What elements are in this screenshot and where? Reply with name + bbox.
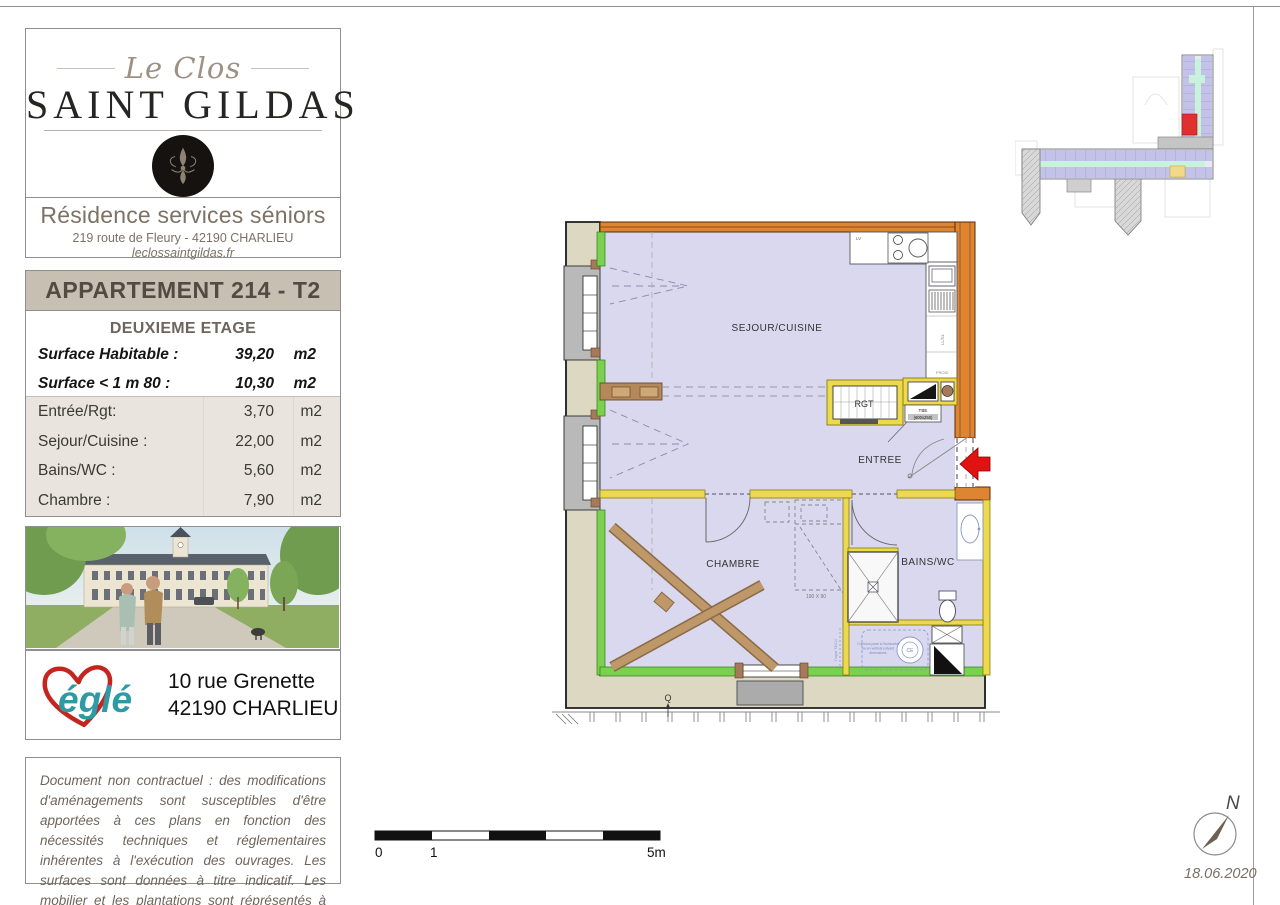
svg-text:RGT: RGT: [855, 399, 875, 409]
plan-sheet: Le Clos SAINT GILDAS Résidence services …: [0, 0, 1280, 905]
laundry-box: [930, 626, 964, 675]
svg-text:190 X 90: 190 X 90: [806, 594, 826, 600]
brand-script-row: Le Clos: [26, 51, 340, 85]
room-surface-table: Entrée/Rgt: 3,70 m2 Sejour/Cuisine : 22,…: [26, 396, 340, 516]
bathroom-sink: [957, 503, 983, 560]
room-label: Chambre :: [38, 486, 110, 516]
agency-name: églé: [58, 679, 132, 720]
table-row: Surface Habitable : 39,20 m2: [26, 340, 340, 369]
table-row: Sejour/Cuisine : 22,00 m2: [26, 427, 340, 457]
brand-panel: Le Clos SAINT GILDAS Résidence services …: [25, 28, 341, 258]
table-row: Surface < 1 m 80 : 10,30 m2: [26, 369, 340, 398]
room-label: Entrée/Rgt:: [38, 397, 116, 427]
building-overview-plan: [1015, 45, 1225, 240]
agency-address-line1: 10 rue Grenette: [168, 668, 338, 695]
apartment-title: APPARTEMENT 214 - T2: [26, 271, 340, 311]
divider: [251, 68, 309, 69]
egle-logo: églé: [26, 655, 166, 735]
residence-website: leclossaintgildas.fr: [26, 246, 340, 260]
svg-text:LV: LV: [856, 236, 861, 241]
svg-text:ou en vertical suivant: ou en vertical suivant: [862, 647, 894, 651]
surface-unit: m2: [294, 369, 316, 398]
svg-text:dimensions: dimensions: [869, 651, 886, 655]
disclaimer-panel: Document non contractuel : des modificat…: [25, 757, 341, 884]
table-row: Bains/WC : 5,60 m2: [26, 456, 340, 486]
page-border-top: [0, 6, 1280, 7]
residence-address: 219 route de Fleury - 42190 CHARLIEU: [26, 231, 340, 245]
svg-text:(600x250): (600x250): [914, 415, 933, 420]
svg-text:TBE: TBE: [919, 408, 928, 413]
svg-text:CE: CE: [907, 648, 915, 654]
toilet: [939, 591, 956, 622]
room-value: 3,70: [203, 397, 274, 427]
agency-address: 10 rue Grenette 42190 CHARLIEU: [168, 668, 338, 723]
brand-script-name: Le Clos: [125, 51, 241, 85]
room-label: Sejour/Cuisine :: [38, 427, 147, 457]
rgt-closet: RGT: [827, 380, 903, 425]
divider: [44, 130, 322, 131]
label-bains: BAINS/WC: [901, 557, 954, 568]
room-unit: m2: [293, 427, 322, 457]
room-label: Bains/WC :: [38, 456, 116, 486]
surface-label: Surface < 1 m 80 :: [38, 369, 170, 398]
svg-text:Trappe 73x110: Trappe 73x110: [834, 639, 838, 662]
shower: [848, 552, 898, 622]
page-border-right: [1253, 6, 1254, 905]
north-label: N: [1226, 793, 1240, 814]
svg-text:Q: Q: [664, 693, 671, 703]
table-row: Entrée/Rgt: 3,70 m2: [26, 397, 340, 427]
apartment-floor: DEUXIEME ETAGE: [26, 320, 340, 338]
brand-main-name: SAINT GILDAS: [26, 81, 340, 128]
ground-hatch: [556, 712, 984, 724]
surface-unit: m2: [294, 340, 316, 369]
apartment-floorplan: LV LL/SL FROID: [552, 208, 1000, 733]
room-unit: m2: [293, 397, 322, 427]
agency-panel: églé 10 rue Grenette 42190 CHARLIEU: [25, 650, 341, 740]
residence-photo: [25, 526, 341, 650]
room-unit: m2: [293, 456, 322, 486]
highlighted-apartment: [1182, 114, 1197, 135]
scale-tick-5m: 5m: [647, 845, 666, 860]
agency-address-line2: 42190 CHARLIEU: [168, 695, 338, 722]
room-value: 22,00: [203, 427, 274, 457]
label-entree: ENTREE: [858, 455, 902, 466]
label-chambre: CHAMBRE: [706, 559, 760, 570]
scale-bar: 0 1 5m: [360, 815, 670, 865]
room-value: 7,90: [203, 486, 274, 516]
surface-summary: Surface Habitable : 39,20 m2 Surface < 1…: [26, 340, 340, 398]
residence-panel: Résidence services séniors 219 route de …: [26, 197, 340, 257]
scale-tick-1: 1: [430, 845, 438, 860]
surface-value: 10,30: [204, 369, 274, 398]
mini-yellow-room: [1170, 166, 1185, 177]
scale-tick-0: 0: [375, 845, 383, 860]
svg-text:LL/SL: LL/SL: [940, 333, 945, 345]
apartment-info-panel: APPARTEMENT 214 - T2 DEUXIEME ETAGE Surf…: [25, 270, 341, 517]
surface-value: 39,20: [204, 340, 274, 369]
fleur-de-lis-emblem-icon: [152, 135, 214, 197]
room-unit: m2: [293, 486, 322, 516]
disclaimer-text: Document non contractuel : des modificat…: [40, 771, 326, 905]
label-sejour: SEJOUR/CUISINE: [732, 323, 823, 334]
residence-tagline: Résidence services séniors: [26, 202, 340, 229]
plan-date: 18.06.2020: [1184, 866, 1257, 882]
divider: [57, 68, 115, 69]
table-row: Chambre : 7,90 m2: [26, 486, 340, 516]
room-value: 5,60: [203, 456, 274, 486]
svg-text:FROID: FROID: [936, 370, 949, 375]
surface-label: Surface Habitable :: [38, 340, 178, 369]
svg-text:Cumulus posé à l'horizontal: Cumulus posé à l'horizontal: [857, 642, 899, 646]
north-compass: N 18.06.2020: [1178, 782, 1258, 887]
